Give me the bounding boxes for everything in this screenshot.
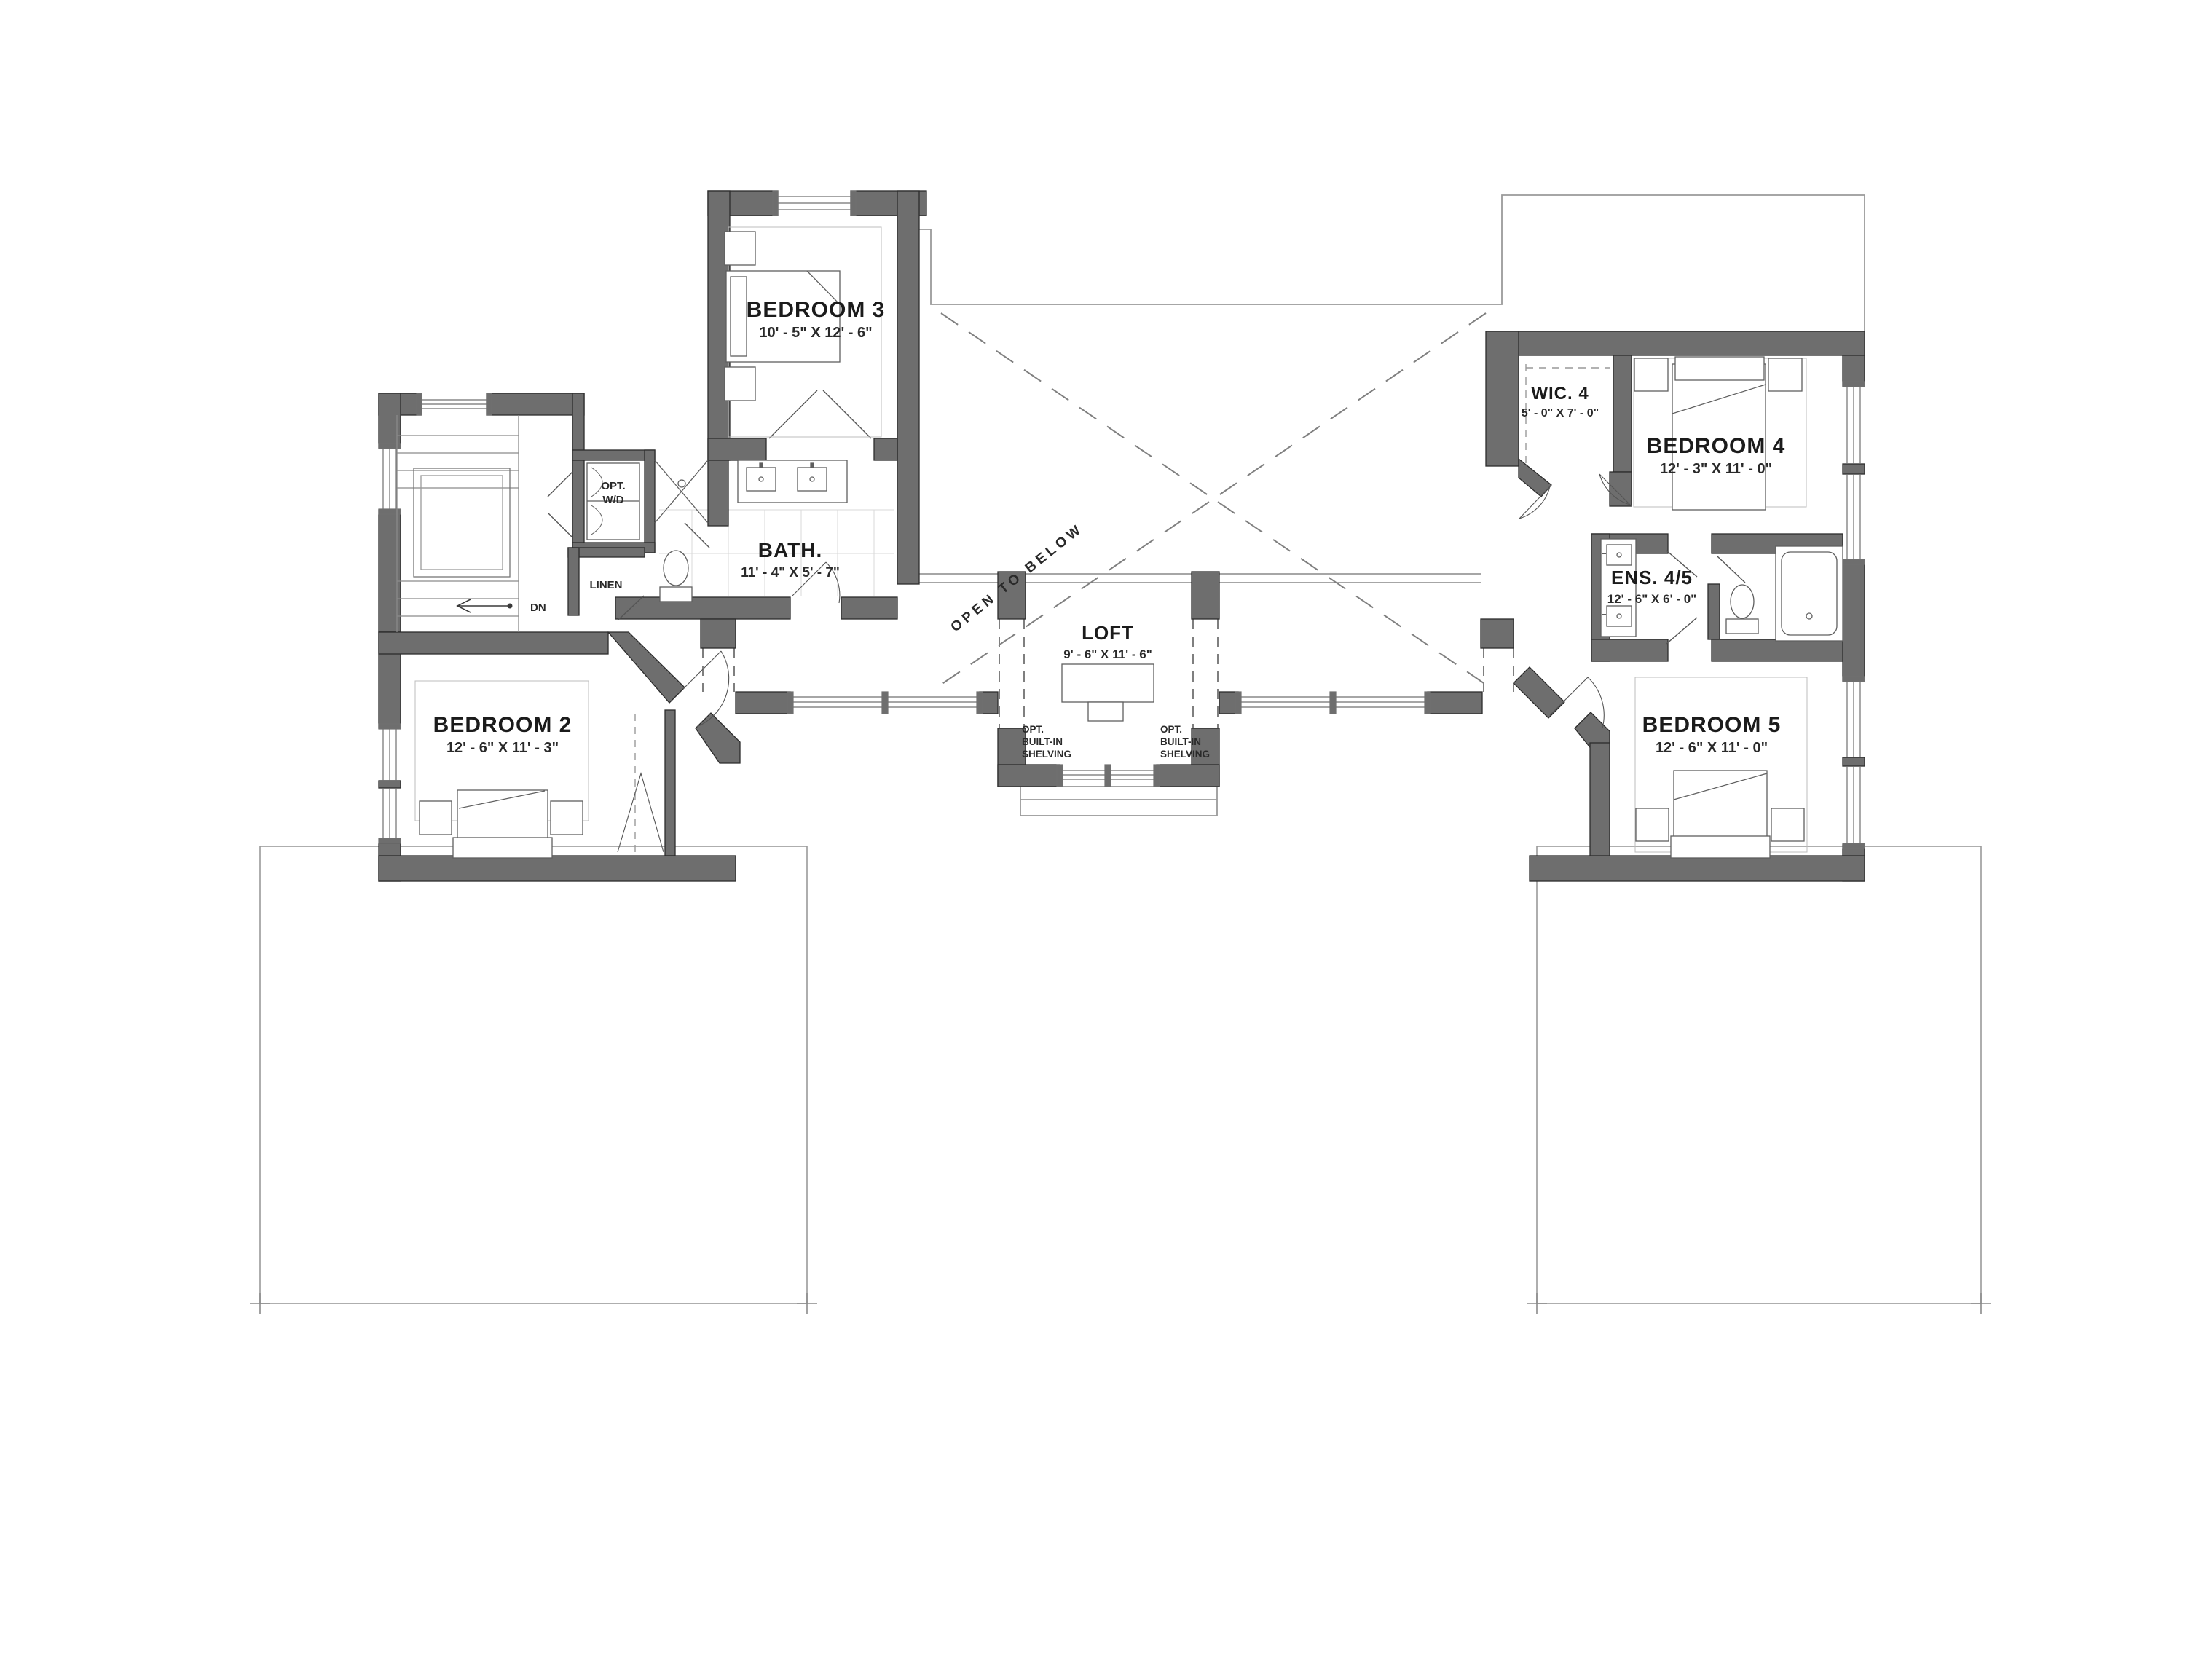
label-bedroom2-name: BEDROOM 2 [433,713,572,737]
label-wic4-name: WIC. 4 [1531,384,1589,403]
label-loft-name: LOFT [1082,622,1134,644]
bath-vanity [738,460,847,503]
label-wic4-dims: 5' - 0" X 7' - 0" [1522,407,1599,419]
label-ens-dims: 12' - 6" X 6' - 0" [1607,592,1696,606]
label-bedroom3-dims: 10' - 5" X 12' - 6" [759,325,872,341]
label-shelving-right-1: OPT. [1160,724,1182,735]
stair-down-arrow [457,599,513,612]
staircase [397,415,519,632]
label-opt-wd-2: W/D [602,494,623,506]
nightstand [551,801,583,835]
label-bath-name: BATH. [758,539,822,561]
label-bedroom4-name: BEDROOM 4 [1647,434,1786,458]
label-shelving-left-1: OPT. [1022,724,1044,735]
floor-plan-canvas: BEDROOM 3 10' - 5" X 12' - 6" BEDROOM 2 … [0,0,2212,1659]
label-ens-name: ENS. 4/5 [1611,567,1693,588]
label-shelving-right-3: SHELVING [1160,749,1210,760]
label-loft-dims: 9' - 6" X 11' - 6" [1063,647,1152,661]
label-linen: LINEN [590,579,623,591]
nightstand [725,367,755,401]
nightstand [725,232,755,265]
label-opt-wd-1: OPT. [601,480,625,492]
label-bath-dims: 11' - 4" X 5' - 7" [741,565,840,580]
label-bedroom4-dims: 12' - 3" X 11' - 0" [1660,461,1772,477]
nightstand [1636,808,1669,841]
label-shelving-right-2: BUILT-IN [1160,736,1201,747]
label-bedroom5-dims: 12' - 6" X 11' - 0" [1656,740,1768,756]
label-shelving-left-2: BUILT-IN [1022,736,1063,747]
label-shelving-left-3: SHELVING [1022,749,1071,760]
loft-desk [1062,664,1154,721]
open-to-below-x-dashed [941,313,1486,685]
nightstand [420,801,452,835]
nightstand [1768,358,1802,391]
nightstand [1634,358,1668,391]
label-dn: DN [530,602,546,614]
toilet [660,551,692,602]
label-bedroom3-name: BEDROOM 3 [747,298,886,322]
label-bedroom5-name: BEDROOM 5 [1642,713,1782,737]
bathtub [1776,546,1843,641]
roof-outline-lower [250,846,1991,1314]
ens-toilet [1726,585,1758,634]
shower [655,460,708,523]
nightstand [1771,808,1804,841]
label-bedroom2-dims: 12' - 6" X 11' - 3" [446,740,559,756]
floor-plan-svg: BEDROOM 3 10' - 5" X 12' - 6" BEDROOM 2 … [0,0,2212,1659]
